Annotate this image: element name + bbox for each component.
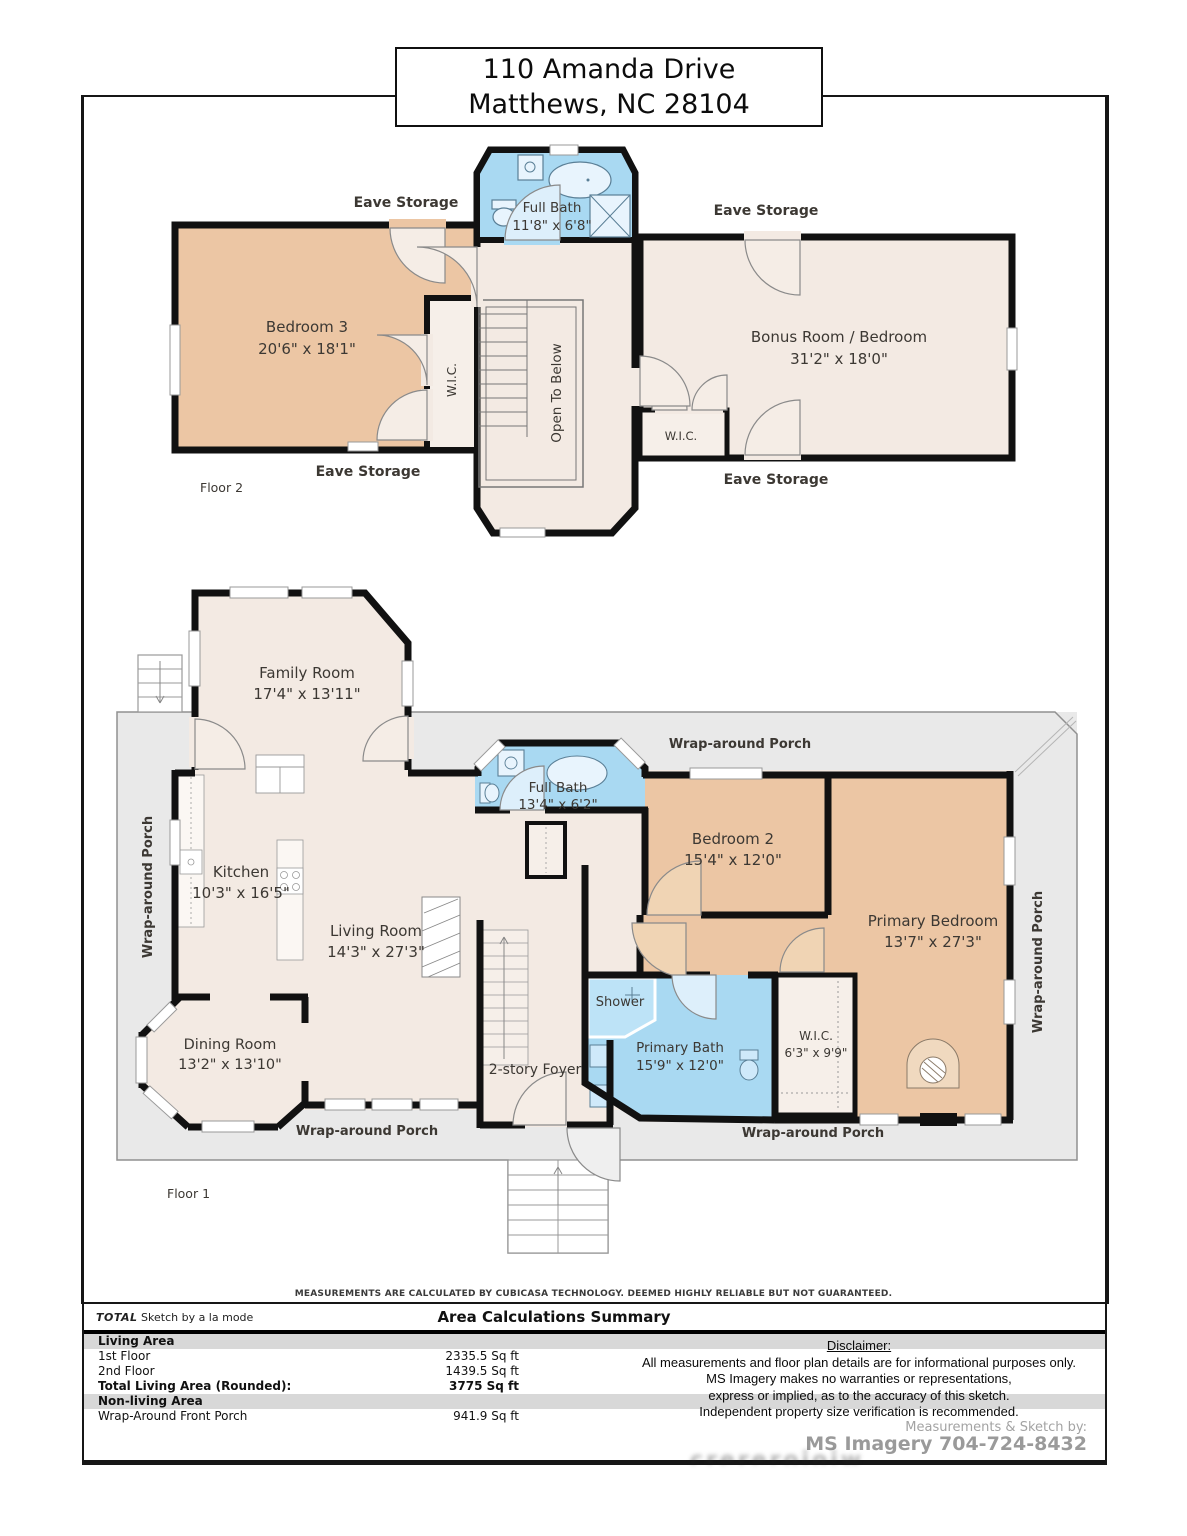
bedroom2-dims: 15'4" x 12'0": [684, 851, 782, 869]
primary-bath-name: Primary Bath: [636, 1040, 724, 1056]
porch-label-bottom-left: Wrap-around Porch: [296, 1124, 438, 1139]
disclaimer-line1: All measurements and floor plan details …: [624, 1355, 1094, 1372]
primary-fireplace: [907, 1039, 959, 1088]
bonus-dims: 31'2" x 18'0": [790, 350, 888, 368]
disclaimer-line3: express or implied, as to the accuracy o…: [624, 1388, 1094, 1405]
side-steps: [138, 655, 182, 712]
living-area-header: Living Area: [98, 1334, 174, 1349]
area-calculations-box: TOTAL Sketch by a la mode Area Calculati…: [82, 1302, 1107, 1465]
brand-rest: Sketch by a la mode: [138, 1311, 254, 1324]
family-dims: 17'4" x 13'11": [253, 685, 360, 703]
hall-closet: [527, 823, 565, 877]
sofa-furniture: [256, 755, 304, 793]
total-living-label: Total Living Area (Rounded):: [98, 1379, 291, 1394]
primary-bath-dims: 15'9" x 12'0": [636, 1058, 724, 1074]
porch-label-right: Wrap-around Porch: [1031, 891, 1046, 1033]
first-floor-label: 1st Floor: [98, 1349, 150, 1364]
disclaimer-block: Disclaimer: All measurements and floor p…: [624, 1338, 1094, 1421]
bonus-name: Bonus Room / Bedroom: [751, 328, 927, 346]
porch-label-bottom-right: Wrap-around Porch: [742, 1126, 884, 1141]
living-name: Living Room: [330, 922, 422, 940]
living-fireplace: [422, 897, 460, 977]
eave-storage-top-left: Eave Storage: [354, 195, 459, 211]
shower-icon: [590, 195, 630, 237]
floor-plan-page: 110 Amanda Drive Matthews, NC 28104: [0, 0, 1187, 1536]
room-wic-f1: [775, 975, 855, 1115]
disclaimer-line4: Independent property size verification i…: [624, 1404, 1094, 1421]
foyer-label: 2-story Foyer: [489, 1062, 582, 1078]
bedroom3-dims: 20'6" x 18'1": [258, 340, 356, 358]
fullbath-f2-dims: 11'8" x 6'8": [512, 218, 591, 234]
porch-label: Wrap-Around Front Porch: [98, 1409, 247, 1424]
family-name: Family Room: [259, 664, 355, 682]
eave-storage-bottom-left: Eave Storage: [316, 464, 421, 480]
floor1-label: Floor 1: [167, 1186, 210, 1201]
bedroom3-name: Bedroom 3: [266, 318, 348, 336]
second-floor-label: 2nd Floor: [98, 1364, 155, 1379]
fullbath-f2-name: Full Bath: [523, 200, 582, 216]
dining-name: Dining Room: [184, 1037, 277, 1053]
kitchen-name: Kitchen: [213, 863, 269, 881]
open-to-below-label: Open To Below: [549, 343, 565, 442]
wic-f2-label: W.I.C.: [445, 363, 459, 397]
chimney-base: [920, 1113, 957, 1126]
address-title-box: 110 Amanda Drive Matthews, NC 28104: [395, 47, 823, 127]
brand-total: TOTAL: [96, 1311, 138, 1324]
disclaimer-heading: Disclaimer:: [624, 1338, 1094, 1355]
summary-title: Area Calculations Summary: [314, 1308, 794, 1326]
porch-value: 941.9 Sq ft: [404, 1409, 519, 1424]
wic-f1-dims: 6'3" x 9'9": [785, 1046, 848, 1060]
disclaimer-line2: MS Imagery makes no warranties or repres…: [624, 1371, 1094, 1388]
wic-f1-name: W.I.C.: [799, 1029, 833, 1043]
bonus-wic-label: W.I.C.: [665, 429, 697, 443]
porch-label-top: Wrap-around Porch: [669, 737, 811, 752]
floor-1-plan: Family Room 17'4" x 13'11" Kitchen 10'3"…: [80, 565, 1110, 1265]
second-floor-value: 1439.5 Sq ft: [404, 1364, 519, 1379]
first-floor-value: 2335.5 Sq ft: [404, 1349, 519, 1364]
bedroom2-name: Bedroom 2: [692, 830, 774, 848]
sink-icon: [518, 155, 543, 180]
fullbath-f1-name: Full Bath: [529, 780, 588, 796]
floor-2-plan: Bedroom 3 20'6" x 18'1" Full Bath 11'8" …: [80, 140, 1030, 560]
dining-dims: 13'2" x 13'10": [178, 1057, 282, 1073]
porch-label-left: Wrap-around Porch: [141, 816, 156, 958]
primary-bedroom-dims: 13'7" x 27'3": [884, 933, 982, 951]
foyer-stairs: [480, 930, 528, 1065]
watermark: crereroioiw: [690, 1448, 1110, 1464]
eave-storage-bottom-right: Eave Storage: [724, 472, 829, 488]
eave-storage-top-right: Eave Storage: [714, 203, 819, 219]
living-dims: 14'3" x 27'3": [327, 943, 425, 961]
sketch-brand: TOTAL Sketch by a la mode: [96, 1311, 253, 1324]
nonliving-header: Non-living Area: [98, 1394, 203, 1409]
kitchen-dims: 10'3" x 16'5": [192, 884, 290, 902]
address-line1: 110 Amanda Drive: [483, 52, 736, 87]
fullbath-f1-dims: 13'4" x 6'2": [518, 797, 597, 813]
address-line2: Matthews, NC 28104: [468, 87, 750, 122]
shower-label: Shower: [596, 995, 645, 1010]
total-living-value: 3775 Sq ft: [404, 1379, 519, 1394]
measurement-note: MEASUREMENTS ARE CALCULATED BY CUBICASA …: [0, 1289, 1187, 1299]
primary-bedroom-name: Primary Bedroom: [868, 912, 999, 930]
floor2-label: Floor 2: [200, 480, 243, 495]
